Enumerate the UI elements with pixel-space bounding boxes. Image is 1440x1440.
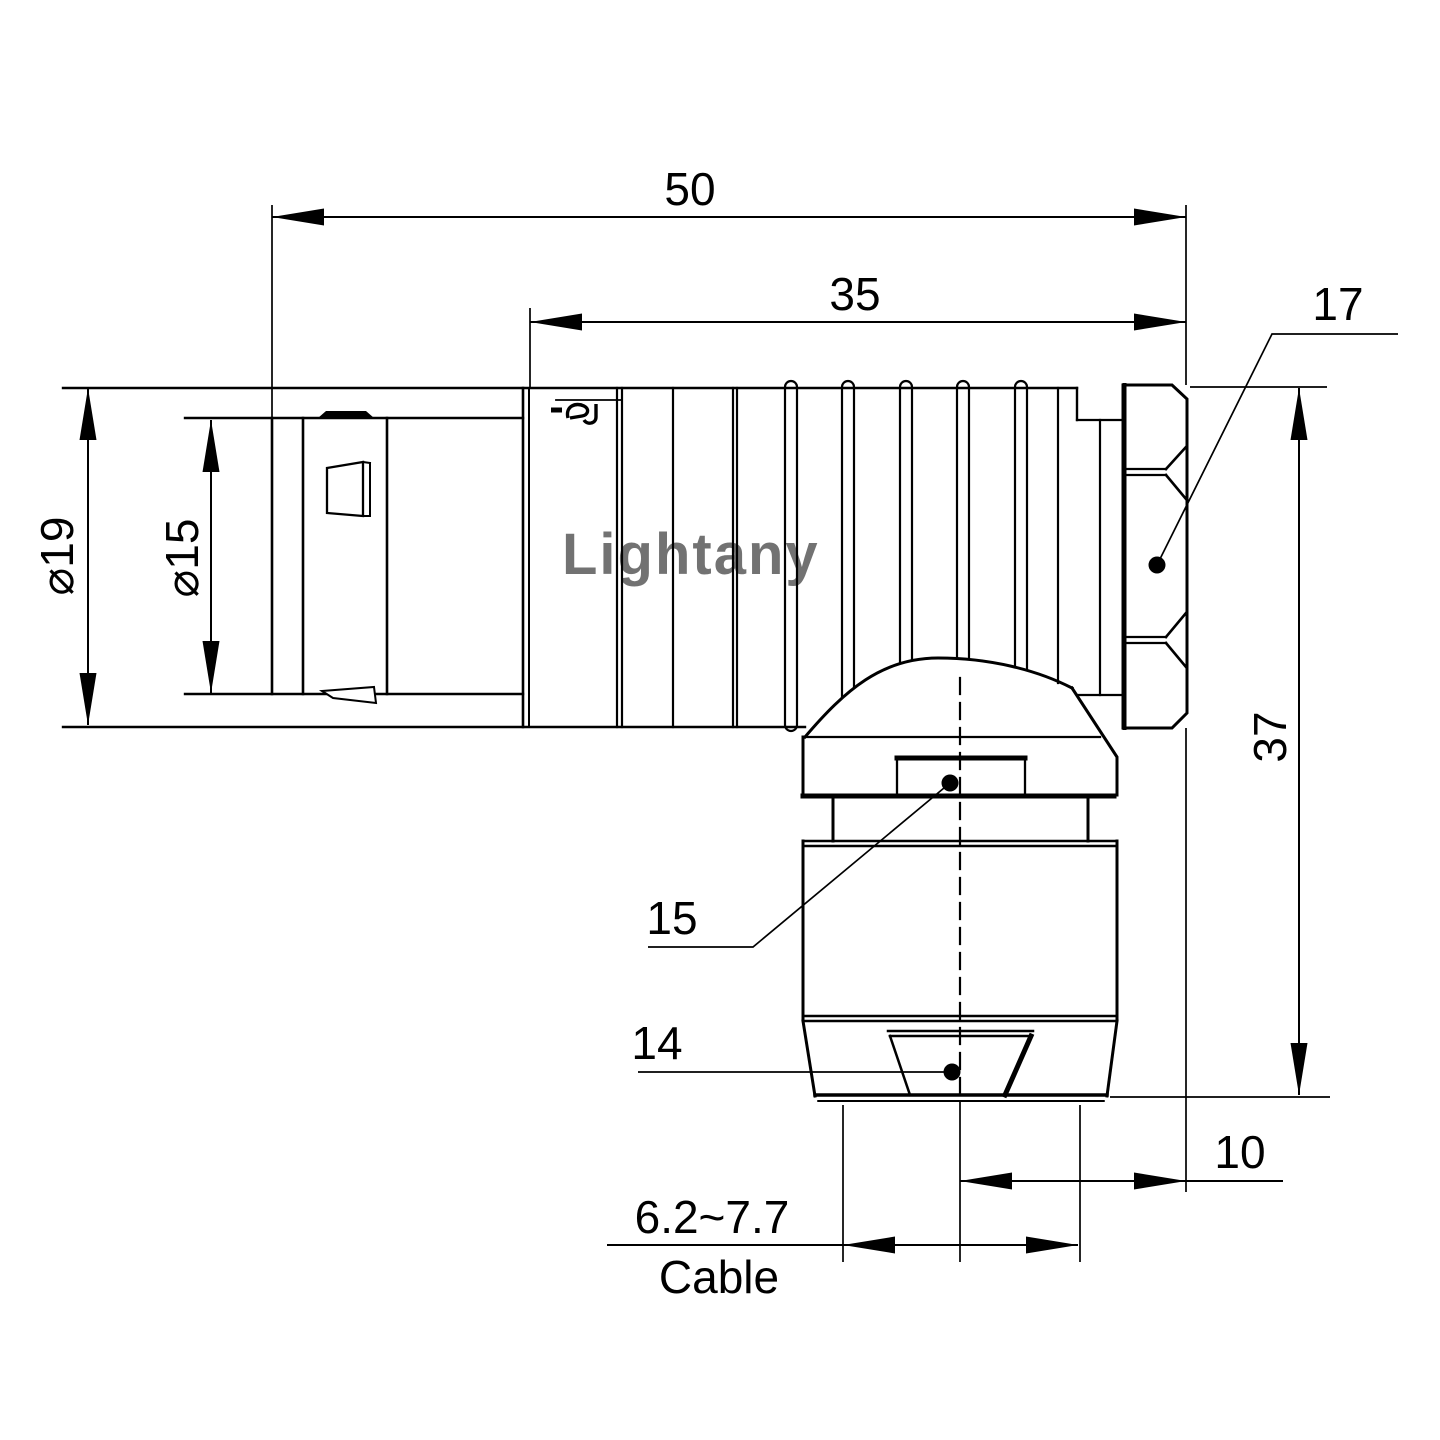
dim-body-length: 35 xyxy=(530,268,1186,331)
dim-label-10: 10 xyxy=(1214,1126,1265,1178)
connector-dimension-drawing: Lightany xyxy=(0,0,1440,1440)
dimensioning: 50 35 ⌀19 ⌀15 37 xyxy=(31,163,1398,1303)
dim-offset: 10 xyxy=(960,1126,1283,1190)
dim-label-dia19: ⌀19 xyxy=(31,517,83,596)
dim-label-15: 15 xyxy=(646,892,697,944)
dim-label-14: 14 xyxy=(631,1017,682,1069)
latch-tab xyxy=(322,687,376,703)
dim-outer-diameter: ⌀19 xyxy=(31,388,97,725)
dim-label-cable-range: 6.2~7.7 xyxy=(635,1191,790,1243)
dim-label-35: 35 xyxy=(829,268,880,320)
dim-label-dia15: ⌀15 xyxy=(156,519,208,598)
technical-drawing-sheet: Lightany xyxy=(0,0,1440,1440)
dim-label-50: 50 xyxy=(664,163,715,215)
dim-label-37: 37 xyxy=(1244,711,1296,762)
dim-label-17: 17 xyxy=(1312,278,1363,330)
dim-height: 37 xyxy=(1244,388,1308,1095)
alignment-key xyxy=(318,411,374,418)
dim-overall-length: 50 xyxy=(272,163,1186,226)
watermark-text: Lightany xyxy=(562,522,820,587)
dim-label-cable: Cable xyxy=(659,1251,779,1303)
dim-coupling-diameter: ⌀15 xyxy=(156,420,220,693)
